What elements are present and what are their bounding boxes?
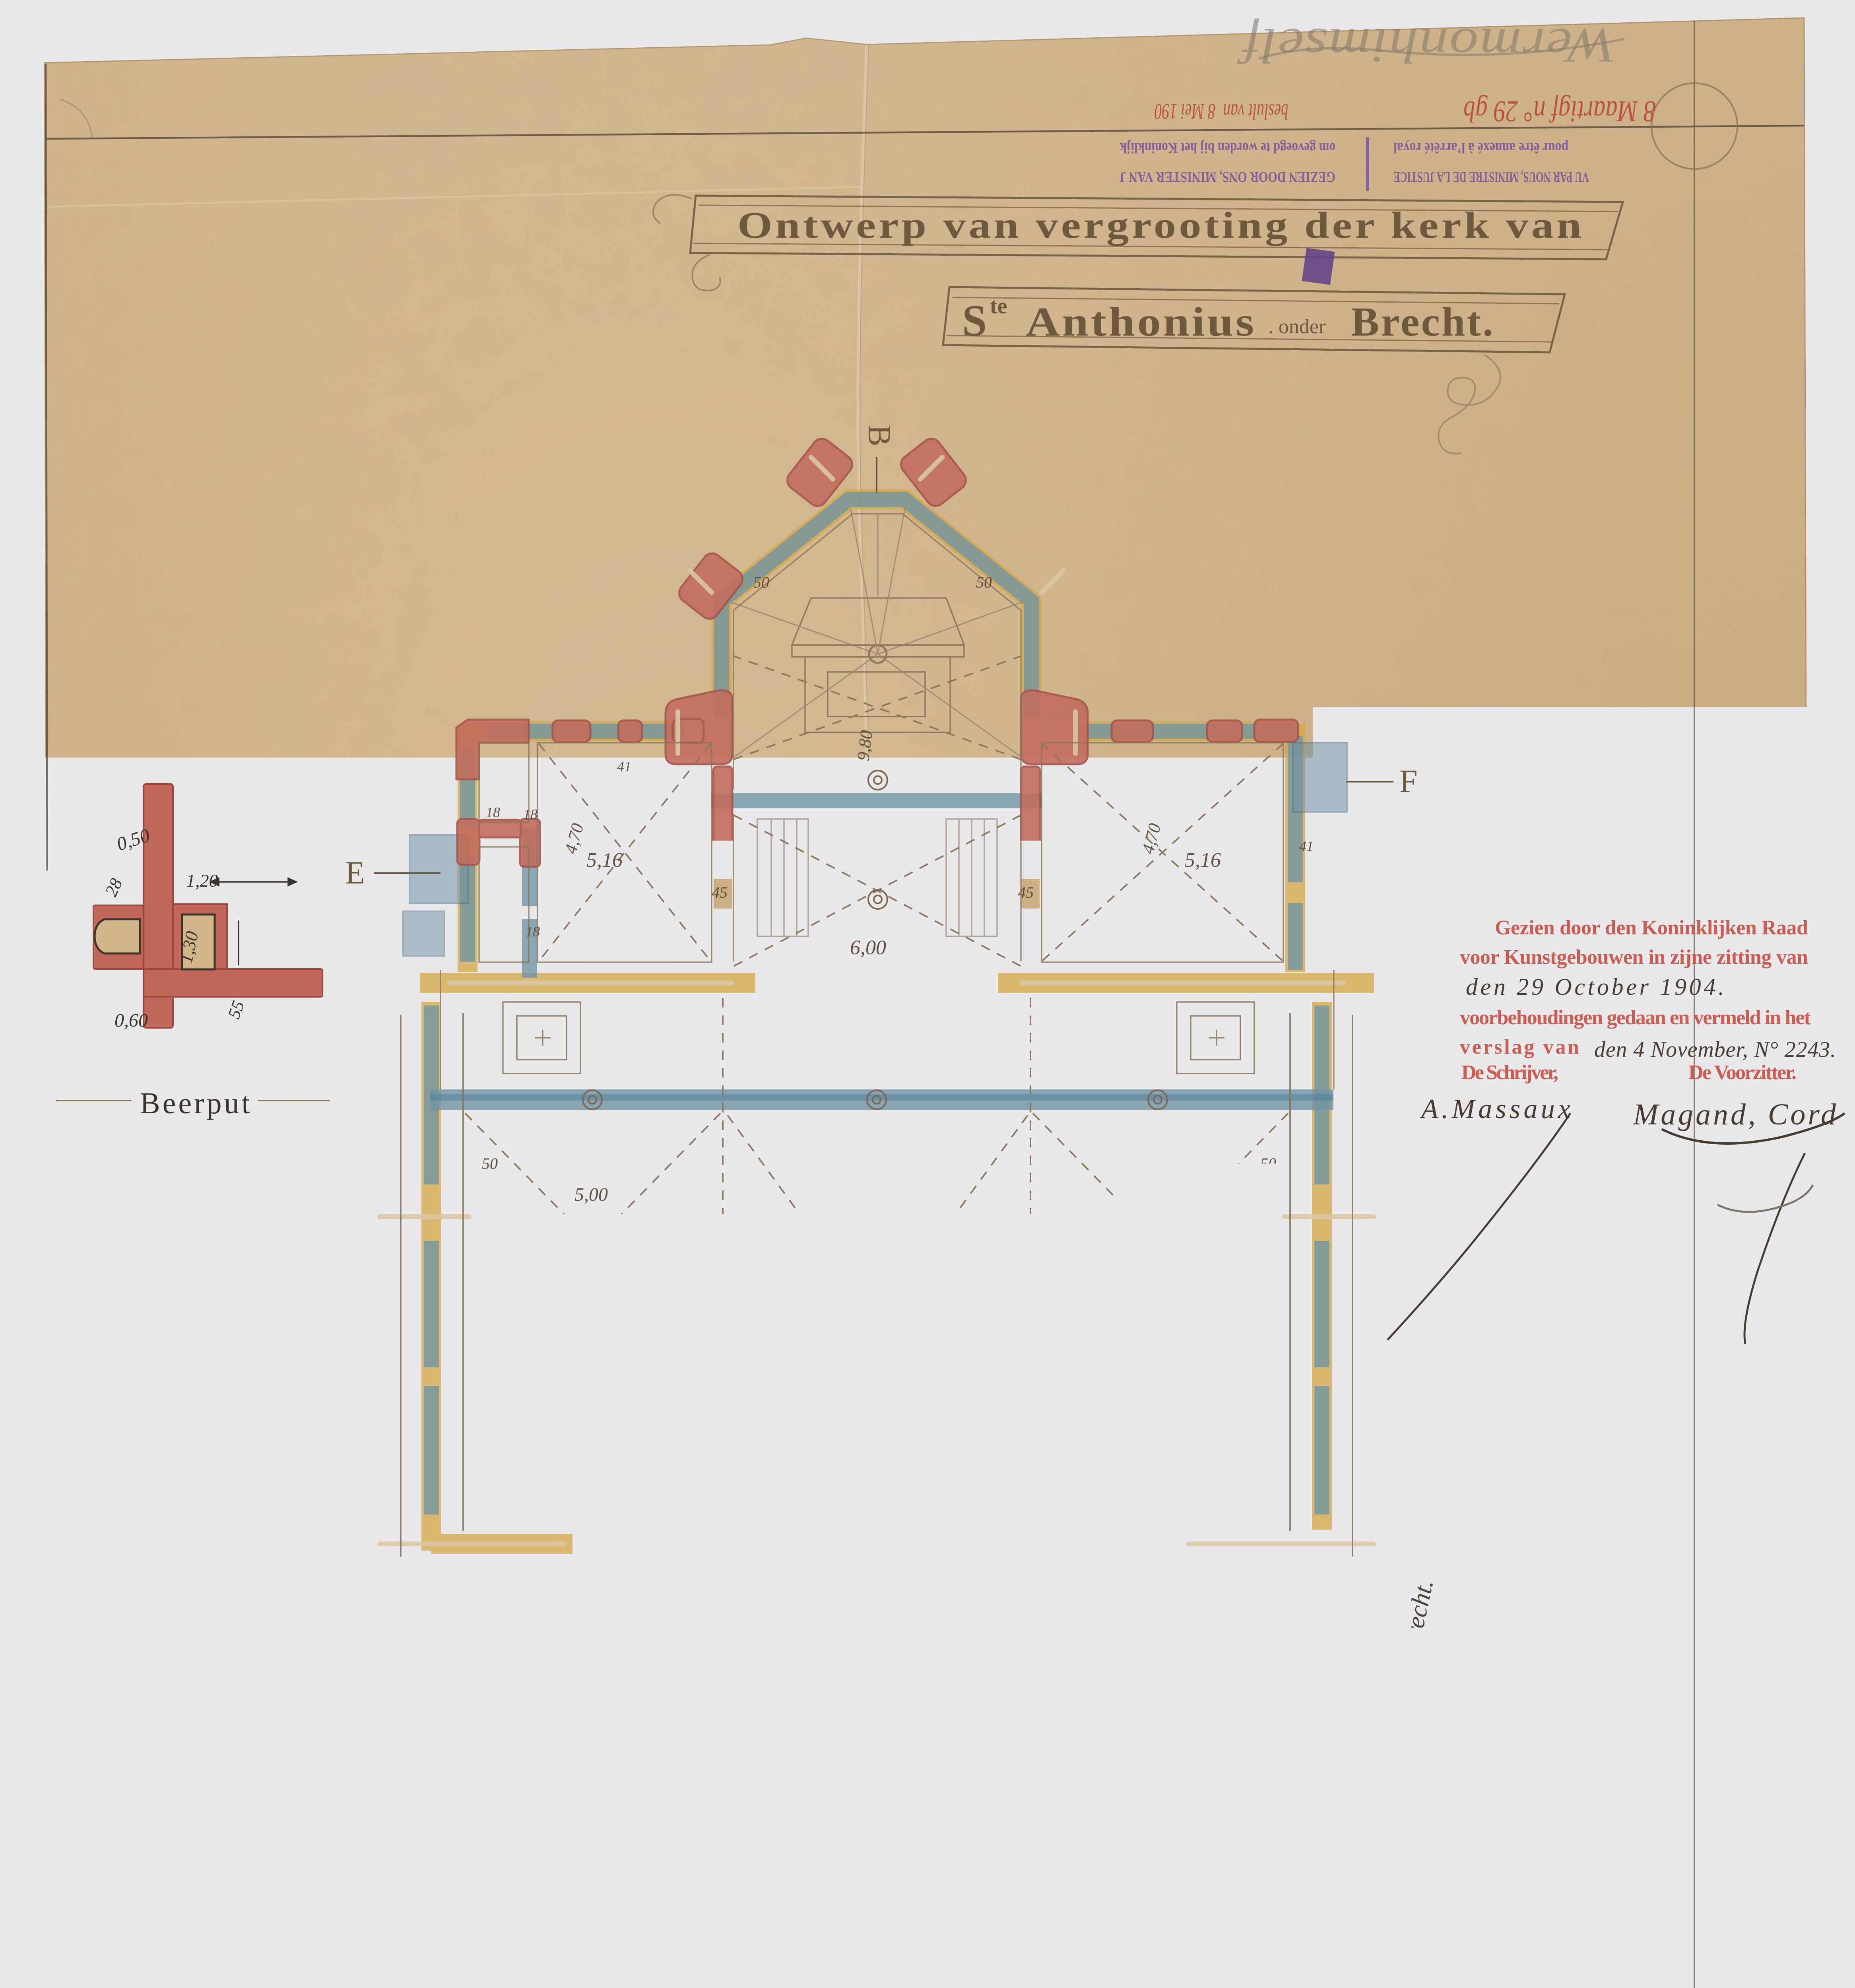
svg-text:VU PAR NOUS, MINISTRE DE LA JU: VU PAR NOUS, MINISTRE DE LA JUSTICE [1393,169,1589,185]
svg-text:41: 41 [617,759,631,775]
svg-text:voorbehoudingen gedaan en verm: voorbehoudingen gedaan en vermeld in het [1460,1006,1811,1029]
svg-text:6,00: 6,00 [847,1691,880,1712]
svg-text:H: H [1297,1850,1320,1886]
svg-text:pour être annexé à l’arrêté ro: pour être annexé à l’arrêté royal [1393,140,1568,156]
svg-text:Ontwerp van vergrooting der ke: Ontwerp van vergrooting der kerk van [737,205,1584,246]
svg-text:8 Maartigf n° 29 gb: 8 Maartigf n° 29 gb [1463,95,1656,128]
svg-text:45: 45 [712,883,728,901]
svg-text:De Voorzitter.: De Voorzitter. [1688,1061,1797,1084]
svg-text:beslult van 8 Mei 190: beslult van 8 Mei 190 [1155,99,1288,124]
svg-text:De Schrijver,: De Schrijver, [1461,1061,1558,1084]
svg-text:Beerput: Beerput [140,1087,252,1120]
svg-text:G: G [462,1850,485,1886]
svg-text:5,52: 5,52 [564,1462,597,1483]
svg-text:Anthonius: Anthonius [1026,299,1256,345]
svg-text:5,52: 5,52 [1175,1462,1208,1483]
svg-text:18: 18 [486,804,500,820]
svg-text:. onder: . onder [1268,315,1325,338]
svg-text:6,64: 6,64 [856,1963,889,1984]
svg-text:5,00: 5,00 [1173,1184,1206,1205]
svg-text:F: F [1399,763,1418,799]
svg-text:50: 50 [1232,1493,1248,1510]
svg-text:50: 50 [976,573,992,591]
svg-text:3,28: 3,28 [621,1965,655,1986]
svg-text:41: 41 [1299,838,1314,854]
svg-text:Brecht.: Brecht. [1351,299,1495,345]
svg-text:GEZIEN DOOR ONS, MINISTER VAN: GEZIEN DOOR ONS, MINISTER VAN J [1120,169,1335,185]
svg-text:45: 45 [1018,883,1034,901]
svg-text:50: 50 [1260,1155,1276,1173]
svg-text:5,16: 5,16 [586,849,623,872]
svg-text:S: S [962,296,987,346]
svg-text:om gevoegd te worden bij het K: om gevoegd te worden bij het Koninklijk [1120,140,1335,156]
svg-text:Gezien door den Koninklijken R: Gezien door den Koninklijken Raad [1495,916,1808,939]
svg-text:5,00: 5,00 [574,1184,608,1205]
svg-text:0,60: 0,60 [114,1010,148,1031]
svg-text:voor Kunstgebouwen in zijne zi: voor Kunstgebouwen in zijne zitting van [1460,946,1808,969]
svg-text:6,52: 6,52 [854,1459,887,1480]
svg-text:18: 18 [526,924,540,940]
svg-text:den 4 November, N° 2243.: den 4 November, N° 2243. [1594,1037,1836,1062]
svg-text:5,16: 5,16 [1185,849,1221,872]
svg-text:50: 50 [753,573,769,591]
svg-text:te: te [990,294,1007,318]
svg-text:Wermonhimself: Wermonhimself [1236,18,1616,73]
svg-text:B: B [862,425,898,447]
svg-text:D: D [1413,1442,1437,1478]
svg-text:verslag van: verslag van [1460,1036,1579,1058]
svg-text:C: C [320,1431,342,1467]
svg-text:6,00: 6,00 [850,936,886,959]
svg-text:50: 50 [482,1155,498,1173]
svg-text:18: 18 [523,806,537,822]
svg-text:9,80: 9,80 [853,729,876,762]
svg-text:E: E [345,854,365,891]
svg-text:3,28: 3,28 [1096,1965,1130,1986]
